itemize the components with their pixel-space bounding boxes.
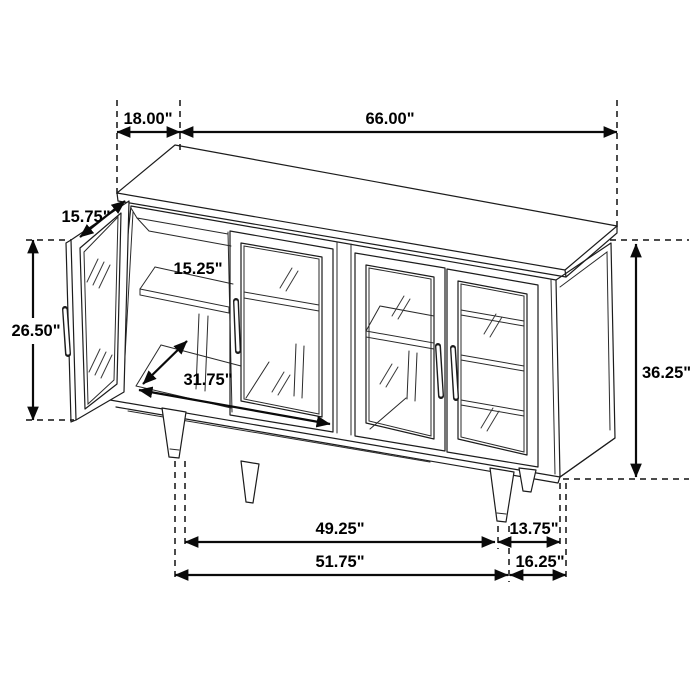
dim-label-door-width: 15.75" [61,208,110,226]
sideboard-diagram-svg: 18.00" 66.00" 15.75" 26.50" 15.25" 31.75… [0,0,700,700]
dim-overall-height: 36.25" [636,244,691,477]
dim-outer-leg-span: 51.75" [175,553,508,575]
open-door-handle[interactable] [65,309,68,354]
back-left-leg [241,461,259,503]
dim-top-width: 66.00" [180,110,617,132]
glass-door-3 [355,253,445,451]
open-door[interactable] [65,201,129,422]
center-stile [337,242,351,435]
cabinet-top [117,145,617,277]
dim-label-top-depth: 18.00" [123,110,172,128]
product-dimension-diagram: 18.00" 66.00" 15.75" 26.50" 15.25" 31.75… [0,0,700,700]
dim-label-overall-height: 36.25" [642,364,691,382]
dim-label-leg-back-offset: 13.75" [509,520,558,538]
dim-inner-leg-span: 49.25" [185,520,495,542]
glass-reflection-hatch [272,268,298,395]
dim-label-outer-leg-span: 51.75" [315,553,364,571]
back-right-leg [519,468,536,492]
right-stile-line [551,280,555,474]
glass-door-2 [230,231,333,432]
dim-door-height: 26.50" [11,240,60,420]
dim-base-depth: 16.25" [510,553,566,575]
glass-reflection-hatch [481,314,502,431]
cabinet-side-panel [556,243,615,477]
glass-door-4 [447,269,538,467]
dim-label-interior-width: 31.75" [183,371,232,389]
dim-label-base-depth: 16.25" [515,553,564,571]
dim-label-top-width: 66.00" [365,110,414,128]
cabinet-drawing [65,145,617,522]
dim-label-inner-leg-span: 49.25" [315,520,364,538]
door-2-handle[interactable] [236,301,238,351]
dim-top-depth: 18.00" [117,110,180,132]
front-left-leg [162,408,186,458]
dim-label-shelf-depth: 15.25" [173,260,222,278]
dim-label-door-height: 26.50" [11,322,60,340]
door-3-handle[interactable] [438,346,441,396]
dim-leg-back-offset: 13.75" [498,520,560,542]
glass-reflection-hatch [380,296,410,387]
dim-shelf-depth: 15.25" [173,260,222,278]
door-4-handle[interactable] [453,348,456,398]
